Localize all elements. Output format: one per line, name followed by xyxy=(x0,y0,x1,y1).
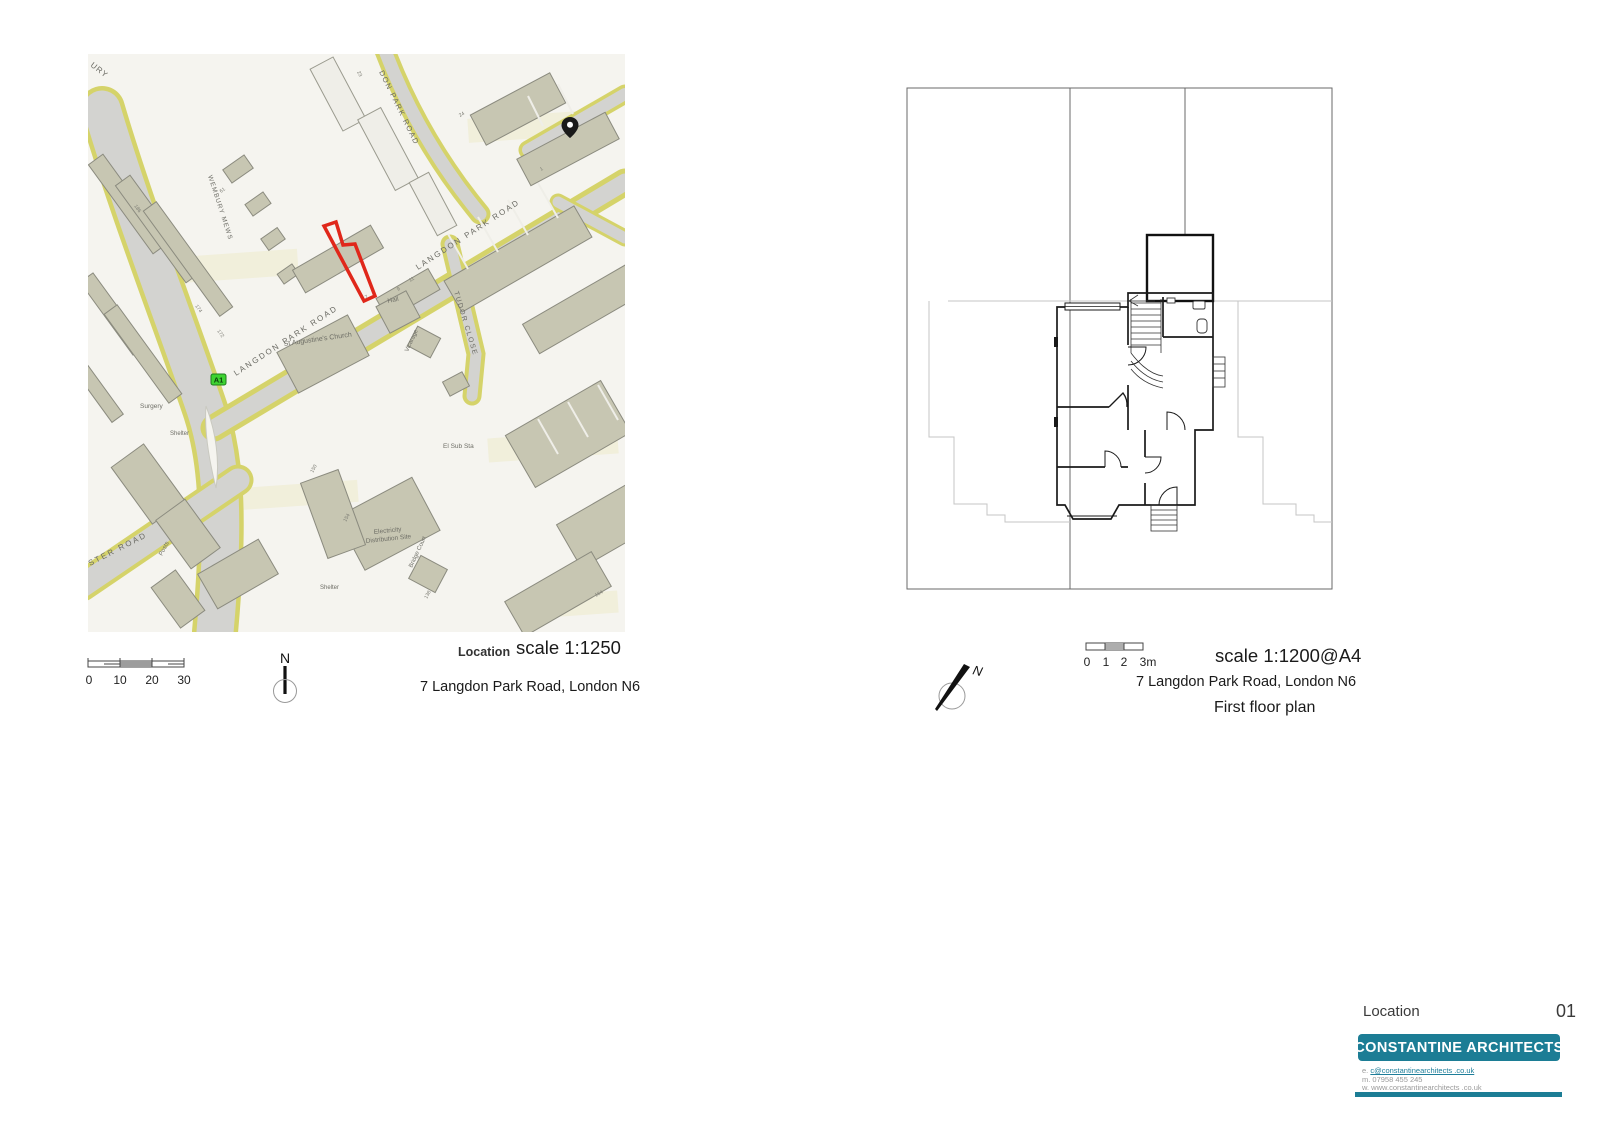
firm-name: CONSTANTINE ARCHITECTS xyxy=(1354,1040,1563,1056)
plan-caption-scale: scale 1:1200@A4 xyxy=(1215,645,1361,667)
svg-text:10: 10 xyxy=(113,673,127,687)
map-caption-address: 7 Langdon Park Road, London N6 xyxy=(420,679,640,695)
titleblock-accent-bar xyxy=(1355,1092,1562,1097)
first-floor-plan xyxy=(905,85,1340,595)
plan-scale-bar: 0 1 2 3m xyxy=(1082,637,1177,671)
email-link[interactable]: c@constantinearchitects .co.uk xyxy=(1370,1066,1474,1075)
svg-text:Surgery: Surgery xyxy=(140,403,164,410)
svg-text:30: 30 xyxy=(177,673,191,687)
svg-text:N: N xyxy=(280,650,290,666)
titleblock-contact: e. c@constantinearchitects .co.uk m. 079… xyxy=(1362,1067,1482,1093)
plan-door-swings xyxy=(1105,347,1185,505)
plan-stairs xyxy=(1129,295,1163,388)
titleblock-sheet-number: 01 xyxy=(1556,1001,1576,1022)
svg-text:A1: A1 xyxy=(214,376,224,385)
road-badge-a1: A1 xyxy=(211,374,226,385)
map-caption-label: Location xyxy=(458,645,510,659)
svg-text:El Sub Sta: El Sub Sta xyxy=(443,443,474,450)
firm-logo: CONSTANTINE ARCHITECTS xyxy=(1358,1034,1560,1061)
svg-text:20: 20 xyxy=(145,673,159,687)
plan-neighbour-outlines xyxy=(929,301,1332,522)
map-scale-bar: 0 10 20 30 xyxy=(84,655,204,689)
svg-text:Shelter: Shelter xyxy=(320,585,339,591)
titleblock-sheet-name: Location xyxy=(1363,1003,1420,1020)
svg-text:Shelter: Shelter xyxy=(170,431,189,437)
svg-text:N: N xyxy=(971,662,984,679)
svg-text:2: 2 xyxy=(1121,655,1128,669)
svg-text:0: 0 xyxy=(1084,655,1091,669)
svg-text:0: 0 xyxy=(86,673,93,687)
plan-caption-title: First floor plan xyxy=(1214,699,1315,717)
svg-text:1: 1 xyxy=(1103,655,1110,669)
plan-site-boundaries xyxy=(907,88,1332,589)
map-north-arrow: N xyxy=(265,648,305,710)
plan-north-arrow: N xyxy=(928,652,992,716)
drawing-sheet: A1 URY WEMBURY MEWS DON PARK ROAD LANGDO… xyxy=(0,0,1600,1131)
svg-text:3m: 3m xyxy=(1140,655,1157,669)
plan-roof-outline xyxy=(1147,235,1213,301)
plan-caption-address: 7 Langdon Park Road, London N6 xyxy=(1136,674,1356,690)
location-map: A1 URY WEMBURY MEWS DON PARK ROAD LANGDO… xyxy=(88,54,625,632)
map-caption-scale: scale 1:1250 xyxy=(516,637,621,659)
plan-fixtures xyxy=(1167,298,1207,333)
